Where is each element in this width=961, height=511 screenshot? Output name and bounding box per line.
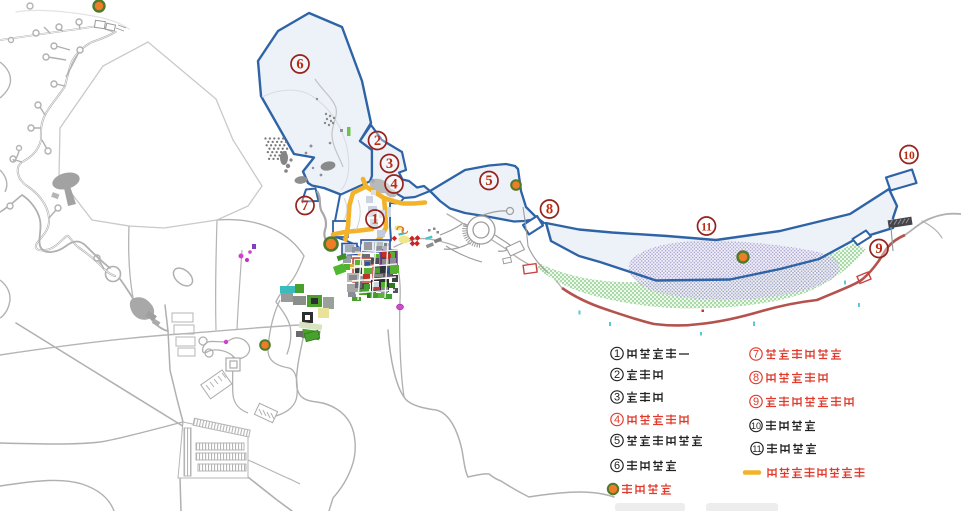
svg-text:6: 6 — [296, 57, 303, 73]
svg-text:10: 10 — [903, 150, 915, 162]
svg-text:5: 5 — [614, 435, 620, 447]
svg-text:8: 8 — [546, 202, 553, 218]
svg-text:3: 3 — [614, 392, 620, 404]
svg-text:7: 7 — [301, 198, 308, 214]
svg-text:10: 10 — [751, 421, 761, 431]
svg-text:2: 2 — [374, 133, 381, 149]
svg-text:11: 11 — [752, 444, 761, 454]
svg-text:1: 1 — [371, 212, 378, 228]
svg-text:7: 7 — [753, 349, 759, 361]
svg-text:8: 8 — [753, 372, 759, 384]
svg-text:9: 9 — [753, 396, 759, 408]
svg-text:2: 2 — [614, 369, 620, 381]
svg-text:4: 4 — [614, 414, 620, 426]
svg-text:4: 4 — [390, 177, 397, 193]
svg-text:11: 11 — [701, 222, 712, 234]
svg-text:5: 5 — [485, 173, 492, 189]
svg-text:9: 9 — [875, 241, 882, 257]
svg-text:6: 6 — [614, 460, 620, 472]
svg-text:1: 1 — [614, 348, 620, 360]
svg-text:3: 3 — [386, 156, 393, 172]
